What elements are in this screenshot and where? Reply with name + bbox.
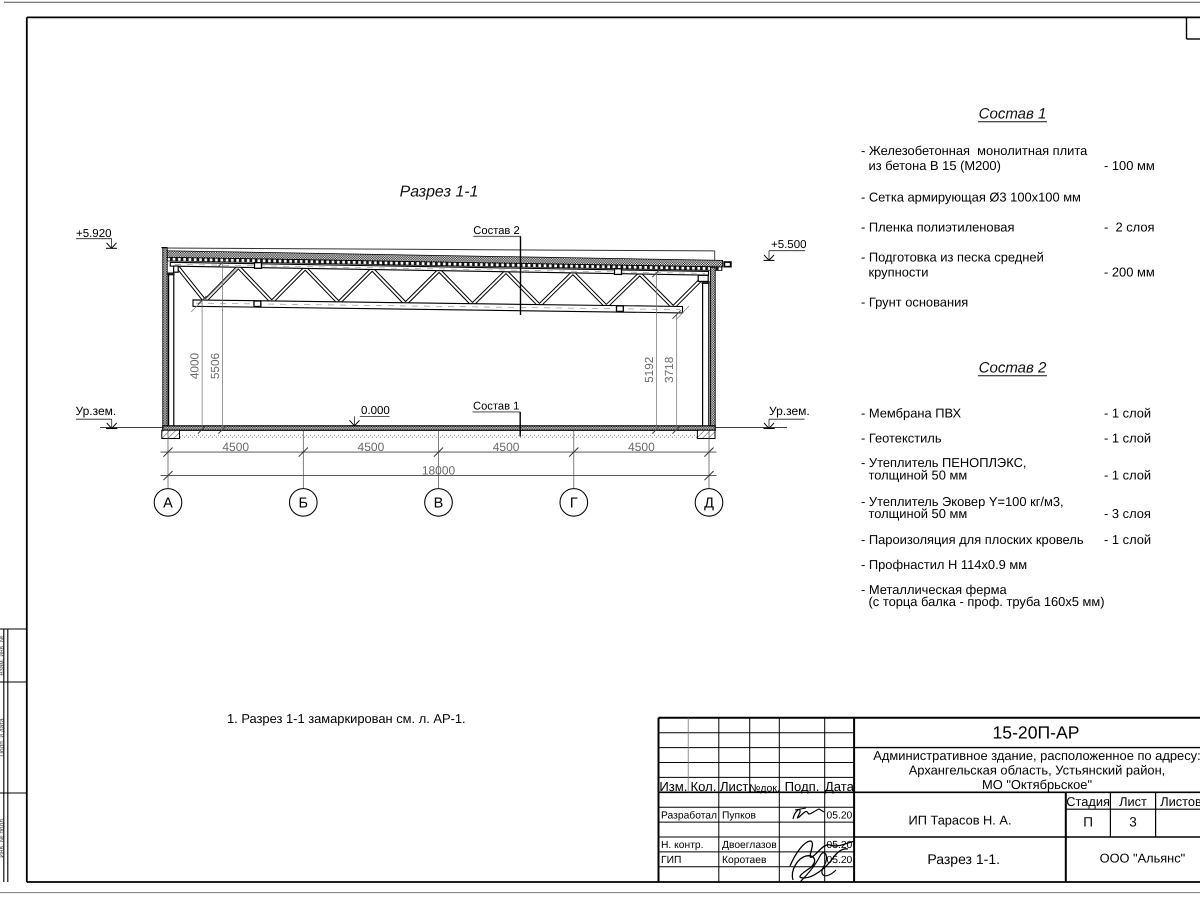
svg-text:крупности: крупности <box>869 264 929 279</box>
svg-text:Ур.зем.: Ур.зем. <box>76 404 117 418</box>
svg-text:Состав 1: Состав 1 <box>473 400 519 412</box>
svg-text:4500: 4500 <box>628 440 655 454</box>
svg-text:- Подготовка из песка средней: - Подготовка из песка средней <box>861 249 1044 264</box>
svg-text:Состав 1: Состав 1 <box>979 106 1047 123</box>
svg-text:Лист: Лист <box>1119 794 1147 809</box>
svg-text:0.000: 0.000 <box>361 405 390 417</box>
svg-text:Г: Г <box>570 496 578 512</box>
svg-text:- Пленка полиэтиленовая: - Пленка полиэтиленовая <box>861 219 1014 234</box>
svg-text:- 1 слой: - 1 слой <box>1104 532 1151 547</box>
svg-text:- 1 слой: - 1 слой <box>1104 430 1151 445</box>
svg-text:4000: 4000 <box>188 352 202 379</box>
svg-text:толщиной 50 мм: толщиной 50 мм <box>869 506 968 521</box>
svg-text:ГИП: ГИП <box>661 855 681 866</box>
svg-text:5192: 5192 <box>642 357 656 383</box>
svg-text:А: А <box>163 496 173 512</box>
svg-text:из бетона В 15 (М200): из бетона В 15 (М200) <box>869 158 1001 173</box>
svg-text:5506: 5506 <box>208 352 222 379</box>
svg-text:4500: 4500 <box>358 440 385 454</box>
svg-text:Листов: Листов <box>1160 794 1200 809</box>
svg-text:Состав 2: Состав 2 <box>473 225 519 237</box>
svg-text:Разрез 1-1: Разрез 1-1 <box>400 183 479 200</box>
svg-text:- Грунт основания: - Грунт основания <box>861 294 968 309</box>
svg-text:№док.: №док. <box>749 782 780 794</box>
svg-text:Стадия: Стадия <box>1066 794 1110 809</box>
svg-text:Разрез 1-1.: Разрез 1-1. <box>927 851 1000 867</box>
svg-text:толщиной 50 мм: толщиной 50 мм <box>869 467 968 482</box>
svg-text:Ур.зем.: Ур.зем. <box>769 404 810 418</box>
svg-text:05.20: 05.20 <box>827 810 853 821</box>
svg-text:(с торца балка - проф. труба 1: (с торца балка - проф. труба 160х5 мм) <box>869 594 1105 609</box>
svg-text:Кол.: Кол. <box>691 779 717 794</box>
svg-text:15-20П-АР: 15-20П-АР <box>993 723 1080 743</box>
svg-text:18000: 18000 <box>422 463 456 477</box>
svg-text:- Пароизоляция для плоских кро: - Пароизоляция для плоских кровель <box>861 532 1084 547</box>
svg-text:МО "Октябрьское": МО "Октябрьское" <box>982 777 1092 792</box>
svg-text:+5.920: +5.920 <box>76 228 112 240</box>
svg-text:Дата: Дата <box>825 779 855 794</box>
svg-text:Двоеглазов: Двоеглазов <box>722 840 777 851</box>
svg-text:Лист: Лист <box>720 779 748 794</box>
svg-text:- 200 мм: - 200 мм <box>1104 264 1155 279</box>
svg-text:- Железобетонная монолитная п: - Железобетонная монолитная плита <box>861 143 1088 158</box>
svg-text:Состав 2: Состав 2 <box>979 360 1047 377</box>
svg-text:- 100 мм: - 100 мм <box>1104 158 1155 173</box>
svg-text:+5.500: +5.500 <box>771 239 807 251</box>
svg-text:Подп. и дата: Подп. и дата <box>0 718 6 757</box>
svg-text:Инв. № подл.: Инв. № подл. <box>0 817 6 858</box>
svg-text:3: 3 <box>1129 815 1137 830</box>
svg-text:- Мембрана ПВХ: - Мембрана ПВХ <box>861 405 962 420</box>
svg-text:- Геотекстиль: - Геотекстиль <box>861 430 942 445</box>
svg-text:Разработал: Разработал <box>661 810 717 821</box>
svg-text:- 1 слой: - 1 слой <box>1104 405 1151 420</box>
svg-text:4500: 4500 <box>222 440 249 454</box>
svg-text:ООО "Альянс": ООО "Альянс" <box>1100 851 1186 866</box>
svg-text:- 1 слой: - 1 слой <box>1104 467 1151 482</box>
svg-text:3718: 3718 <box>662 356 676 383</box>
svg-text:Административное здание, распо: Административное здание, расположенное п… <box>873 748 1200 763</box>
svg-text:П: П <box>1083 815 1093 830</box>
svg-text:4500: 4500 <box>493 440 520 454</box>
svg-text:Изм.: Изм. <box>659 779 687 794</box>
svg-text:Коротаев: Коротаев <box>722 855 767 866</box>
svg-text:ИП Тарасов Н. А.: ИП Тарасов Н. А. <box>909 813 1012 828</box>
svg-text:Подп.: Подп. <box>785 779 820 794</box>
svg-text:Д: Д <box>704 496 714 512</box>
svg-text:- 3 слоя: - 3 слоя <box>1104 506 1151 521</box>
svg-text:Б: Б <box>299 496 309 512</box>
svg-text:- 2 слоя: - 2 слоя <box>1104 219 1154 234</box>
svg-text:1. Разрез 1-1 замаркирован см.: 1. Разрез 1-1 замаркирован см. л. АР-1. <box>227 711 466 726</box>
svg-text:Архангельская область, Устьянс: Архангельская область, Устьянский район, <box>909 762 1166 777</box>
svg-text:- Сетка армирующая Ø3 100х100: - Сетка армирующая Ø3 100х100 мм <box>861 189 1081 204</box>
svg-text:В: В <box>434 496 444 512</box>
svg-text:Взам. инв. №: Взам. инв. № <box>0 635 6 675</box>
svg-text:Н. контр.: Н. контр. <box>661 840 704 851</box>
svg-text:- Профнастил Н 114х0.9 мм: - Профнастил Н 114х0.9 мм <box>861 557 1027 572</box>
svg-text:Пупков: Пупков <box>722 810 756 821</box>
